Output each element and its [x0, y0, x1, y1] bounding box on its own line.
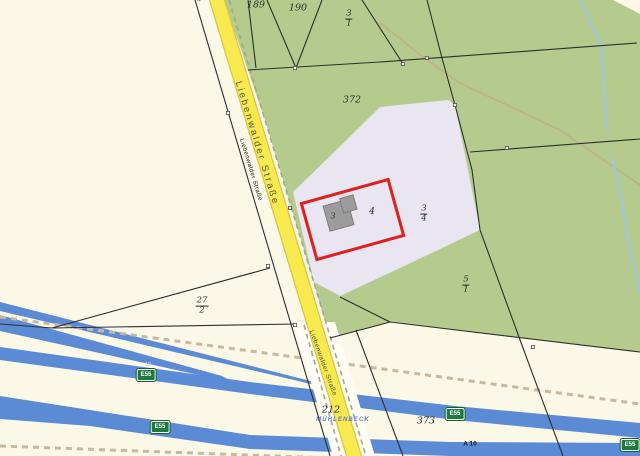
parcel-number-5-1: 5 1	[462, 276, 469, 295]
route-badge-e55: E55	[151, 421, 170, 433]
parcel-number-373: 373	[417, 416, 435, 427]
motorway-label-a10: A 10	[463, 441, 477, 448]
parcel-number-190: 190	[289, 3, 307, 14]
house-number-3: 3	[330, 212, 335, 221]
place-name-muehlenbeck: MÜHLENBECK	[316, 417, 370, 423]
parcel-number-189: 189	[247, 0, 265, 11]
route-badge-e55: E55	[446, 408, 465, 420]
parcel-number-27-2: 27 2	[196, 297, 209, 316]
route-badge-e55: E55	[137, 369, 156, 381]
map-canvas[interactable]: Liebenwalder Straße Liebenwalder Straße …	[0, 0, 640, 456]
parcel-number-372: 372	[343, 95, 361, 106]
motorway-small-label-10: 10	[145, 362, 151, 368]
parcel-number-3-1: 3 1	[345, 10, 352, 29]
parcel-number-4: 4	[369, 207, 375, 217]
parcel-number-3-4: 3 4	[420, 205, 427, 224]
parcel-number-212: 212	[322, 405, 340, 416]
route-badge-e55: E55	[621, 439, 640, 451]
